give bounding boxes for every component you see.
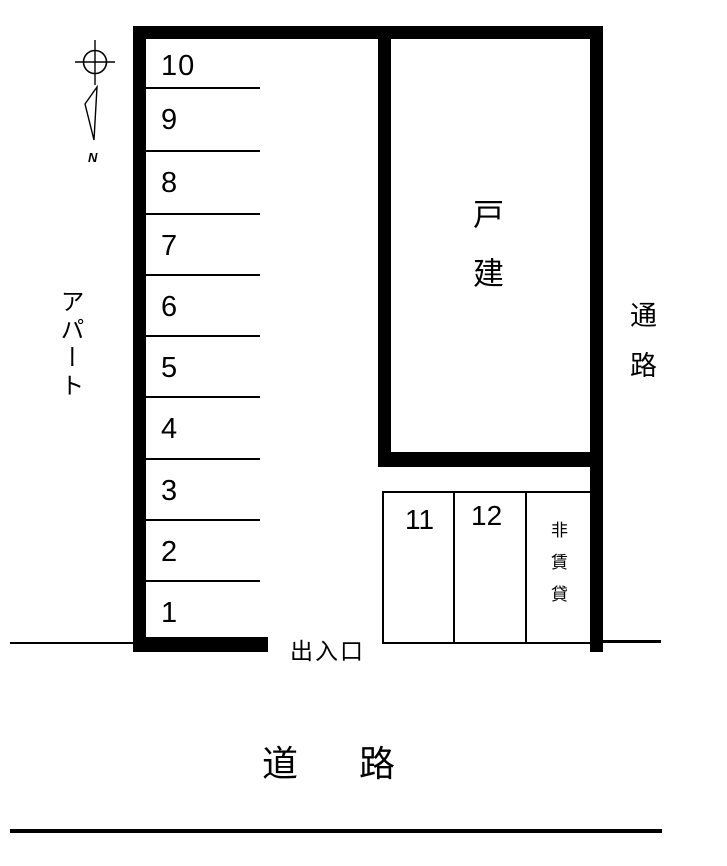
plot-left-wall bbox=[133, 26, 146, 652]
frontage-line-right bbox=[603, 640, 661, 643]
parking-space-row: 8 bbox=[146, 152, 260, 215]
house-plot-label: 戸建 bbox=[470, 198, 501, 316]
road-label: 道路 bbox=[262, 746, 456, 782]
parking-bottom-wall bbox=[133, 637, 268, 652]
parking-space-number: 6 bbox=[161, 293, 178, 322]
parking-space-number: 9 bbox=[161, 106, 178, 135]
parking-space-row: 6 bbox=[146, 276, 260, 337]
bottom-parking-divider bbox=[453, 491, 455, 644]
parking-layout-diagram: N アパート 10 9 8 7 6 5 4 3 2 1 戸建 通路 11 12 … bbox=[0, 0, 727, 866]
parking-space-row: 5 bbox=[146, 337, 260, 398]
bottom-parking-divider bbox=[525, 491, 527, 644]
plot-top-wall bbox=[133, 26, 603, 39]
road-edge-line bbox=[10, 829, 662, 833]
parking-space-row: 3 bbox=[146, 460, 260, 521]
parking-space-row: 9 bbox=[146, 89, 260, 152]
parking-space-row: 1 bbox=[146, 582, 260, 637]
parking-space-number: 4 bbox=[161, 415, 178, 444]
parking-space-number: 2 bbox=[161, 538, 178, 567]
parking-space-number: 1 bbox=[161, 599, 178, 628]
parking-space-row: 4 bbox=[146, 398, 260, 460]
parking-space-number: 8 bbox=[161, 169, 178, 198]
parking-space-number: 11 bbox=[405, 506, 434, 534]
apartment-label: アパート bbox=[57, 289, 81, 401]
entrance-label: 出入口 bbox=[290, 640, 365, 663]
parking-space-row: 2 bbox=[146, 521, 260, 582]
house-left-wall bbox=[378, 26, 391, 467]
compass-north-arrow-icon bbox=[55, 33, 135, 148]
house-bottom-wall bbox=[378, 452, 603, 467]
parking-space-number: 10 bbox=[161, 52, 195, 81]
parking-space-number: 7 bbox=[161, 232, 178, 261]
parking-space-number: 3 bbox=[161, 477, 178, 506]
parking-space-number: 12 bbox=[471, 502, 502, 530]
parking-space-number: 5 bbox=[161, 354, 178, 383]
parking-space-row: 10 bbox=[146, 40, 260, 89]
frontage-line-left bbox=[10, 642, 133, 644]
non-rental-label: 非賃貸 bbox=[549, 521, 566, 617]
passage-label: 通路 bbox=[627, 301, 654, 401]
parking-space-row: 7 bbox=[146, 215, 260, 276]
compass-north-label: N bbox=[88, 151, 97, 164]
